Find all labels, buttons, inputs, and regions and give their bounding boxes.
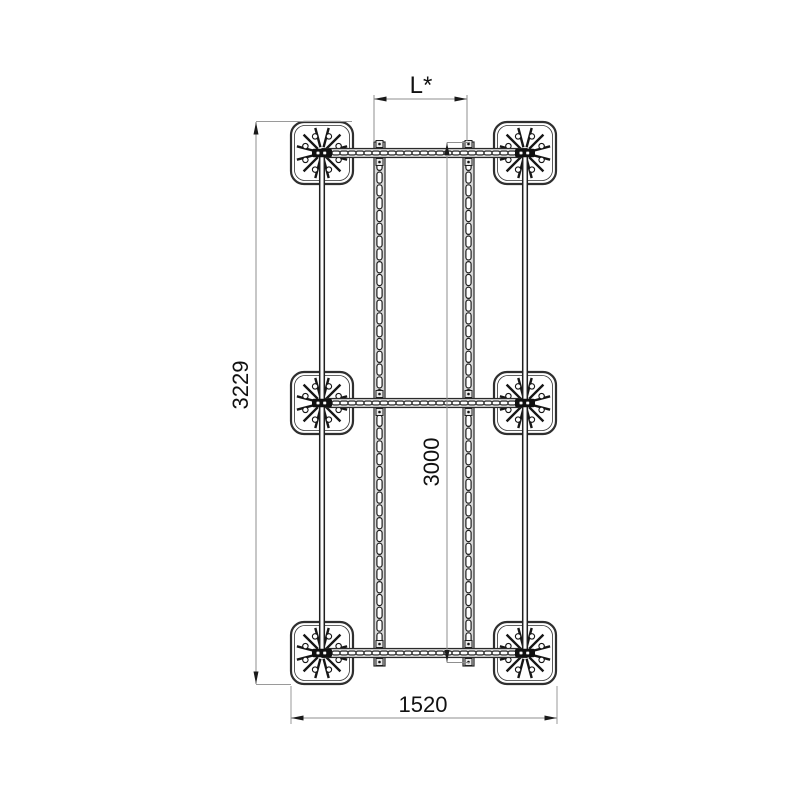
hub-clamp	[312, 649, 332, 657]
dimension-label-overall-length: 3229	[228, 361, 253, 410]
bolt	[465, 159, 472, 166]
cross-rail-top	[322, 149, 527, 158]
bolt	[465, 141, 472, 148]
arrow-right	[455, 97, 468, 102]
frame-assembly-drawing: L* 3229 3000 1520	[0, 0, 800, 800]
bolt	[465, 391, 472, 398]
bolt	[376, 141, 383, 148]
dimension-label-rail-spacing: L*	[410, 72, 433, 99]
dimension-overall-width: 1520	[291, 686, 557, 724]
dimension-rail-spacing: L*	[374, 72, 467, 141]
bolt	[465, 409, 472, 416]
dimension-label-rail-length: 3000	[419, 438, 444, 487]
bolt	[465, 641, 472, 648]
bolt	[376, 391, 383, 398]
dimension-label-overall-width: 1520	[399, 692, 448, 717]
bolt	[376, 159, 383, 166]
cross-rail-bottom	[322, 649, 527, 658]
bolt	[376, 659, 383, 666]
hub-clamp	[515, 649, 535, 657]
hub-clamp	[515, 149, 535, 157]
arrow-left	[374, 97, 387, 102]
hub-clamp	[515, 399, 535, 407]
hub-clamp	[312, 399, 332, 407]
bolt	[376, 641, 383, 648]
cross-rail-middle	[322, 399, 527, 408]
drawing-canvas: L* 3229 3000 1520	[0, 0, 800, 800]
arrow-left	[291, 716, 304, 721]
bolt	[376, 409, 383, 416]
hub-clamp	[312, 149, 332, 157]
arrow-down	[254, 672, 259, 685]
arrow-right	[545, 716, 558, 721]
arrow-up	[254, 122, 259, 135]
